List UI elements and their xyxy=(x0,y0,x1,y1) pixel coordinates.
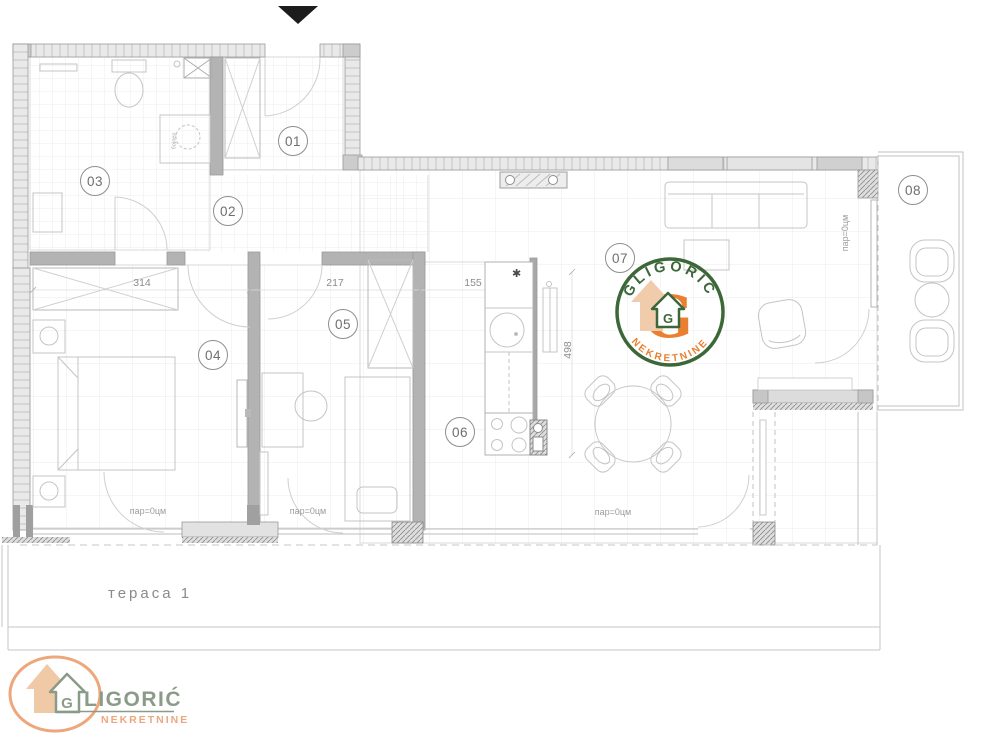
dimension-label: 498 xyxy=(562,341,574,359)
entrance-marker-icon xyxy=(278,6,318,24)
kitchen-star-symbol: ✱ xyxy=(512,267,521,280)
floor-level-label: пар=0цм xyxy=(840,215,850,252)
room-badge-05: 05 xyxy=(328,309,358,339)
floor-plan-drawing: GLIGORIĆ NEKRETNINE G G G LIGORIĆ NEKRET… xyxy=(0,0,1000,740)
dimension-label: 314 xyxy=(133,277,151,289)
room-badge-02: 02 xyxy=(213,196,243,226)
floor-level-label: пар=0цм xyxy=(595,507,632,517)
dimension-label: 217 xyxy=(326,277,344,289)
boiler-label: бојлер xyxy=(171,133,177,150)
footer-logo: G LIGORIĆ NEKRETNINE xyxy=(10,657,189,731)
floor-level-label: пар=0цм xyxy=(290,506,327,516)
floor-plan-page: GLIGORIĆ NEKRETNINE G G G LIGORIĆ NEKRET… xyxy=(0,0,1000,740)
room-badge-07: 07 xyxy=(605,243,635,273)
watermark-house-letter: G xyxy=(663,311,673,326)
dimension-label: 155 xyxy=(464,277,482,289)
room-badge-08: 08 xyxy=(898,175,928,205)
terrace-label: тераса 1 xyxy=(108,585,192,602)
room-badge-04: 04 xyxy=(198,340,228,370)
floor-level-label: пар=0цм xyxy=(130,506,167,516)
room-badge-06: 06 xyxy=(445,417,475,447)
room-badge-03: 03 xyxy=(80,166,110,196)
room-badge-01: 01 xyxy=(278,126,308,156)
footer-brand-text: LIGORIĆ xyxy=(84,687,182,711)
footer-subtitle-text: NEKRETNINE xyxy=(101,714,189,726)
footer-house-letter: G xyxy=(61,695,73,712)
